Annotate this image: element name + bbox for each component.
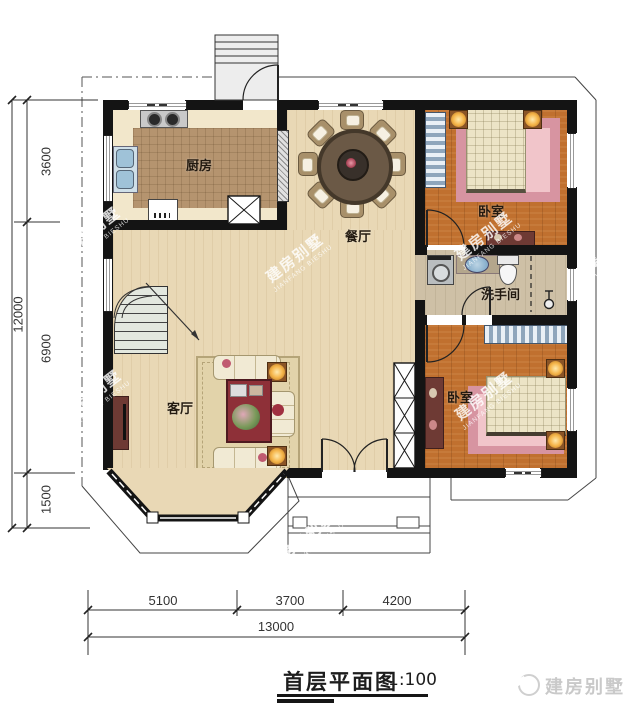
svg-text:JIANFANG BIESHU: JIANFANG BIESHU [590, 232, 640, 282]
wall-top [185, 100, 243, 110]
dresser-decor [514, 234, 522, 241]
wall-bottom [540, 468, 577, 478]
bathroom-label: 洗手间 [481, 288, 520, 301]
drawing-title: 首层平面图 [283, 666, 398, 696]
washer-top-panel [428, 256, 451, 260]
wall-right [567, 300, 577, 388]
dim-left-total: 12000 [12, 285, 25, 345]
wall-right [567, 100, 577, 133]
appliance-grill [154, 213, 170, 218]
wall-bedroom-top-south [465, 245, 577, 255]
title-underline-short [277, 699, 334, 703]
washer-door [432, 264, 450, 282]
bedroom-bottom-right-window [568, 388, 576, 432]
wall-top [382, 100, 577, 110]
sink-basin [116, 149, 134, 168]
drawing-scale: 1:100 [388, 670, 437, 690]
bedroom-top-right-window [568, 133, 576, 189]
dim-left-bottom: 1500 [40, 470, 53, 530]
wall-middle-vertical [415, 110, 425, 250]
tv-screen [123, 404, 126, 440]
dining-chair [298, 152, 318, 176]
svg-text:建房别墅: 建房别墅 [275, 508, 340, 564]
dresser-decor [494, 234, 502, 241]
wall-bathroom-south [462, 315, 466, 325]
kitchen-label: 厨房 [186, 159, 212, 172]
bedroom-bottom-label: 卧室 [447, 391, 473, 404]
bedside-lamp [546, 359, 565, 378]
dining-label: 餐厅 [345, 230, 371, 243]
dim-bottom-middle: 3700 [260, 594, 320, 607]
sink-basin [116, 170, 134, 189]
wall-top [103, 100, 128, 110]
wash-basin [465, 256, 489, 273]
table-flower [346, 158, 356, 168]
brand-logo-icon [518, 674, 540, 696]
bedroom-top-bed [466, 104, 526, 193]
entry-porch [288, 478, 430, 553]
wall-bathroom-south [492, 315, 577, 325]
dresser-decor [429, 420, 437, 430]
side-table-lamp [267, 446, 287, 466]
table-book [230, 384, 247, 397]
bedroom-bottom-window [505, 469, 542, 477]
dim-left-middle: 6900 [40, 319, 53, 379]
armchair-pillow [272, 404, 284, 416]
wall-bottom [287, 468, 322, 478]
rear-porch [215, 35, 278, 100]
dim-left-top: 3600 [40, 132, 53, 192]
sofa-pillow [222, 359, 231, 368]
svg-text:建房别墅: 建房别墅 [581, 218, 640, 274]
wall-bathroom-south [415, 315, 427, 325]
sofa-pillow [258, 453, 267, 462]
tv-cabinet [112, 396, 129, 450]
bedside-lamp [449, 110, 468, 129]
bathroom-right-window [568, 268, 576, 302]
flower-bouquet [232, 404, 260, 430]
kitchen-top-window [128, 101, 187, 109]
dim-bottom-right: 4200 [367, 594, 427, 607]
svg-text:JIANFANG BIESHU: JIANFANG BIESHU [284, 522, 346, 572]
dining-top-window [318, 101, 384, 109]
living-label: 客厅 [167, 402, 193, 415]
bedside-lamp [546, 431, 565, 450]
dresser-decor [429, 388, 437, 398]
dim-bottom-total: 13000 [246, 620, 306, 633]
kitchen-left-window [104, 135, 112, 202]
stove-burner-icon [147, 112, 162, 127]
wall-middle-vertical [415, 300, 425, 470]
kitchen-sliding-door [277, 130, 289, 202]
title-underline [277, 694, 428, 697]
bedroom-bottom-bed [486, 376, 566, 436]
brand-logo-text: 建房别墅 [545, 673, 625, 699]
bedside-lamp [523, 110, 542, 129]
table-book [249, 385, 263, 396]
bedroom-top-label: 卧室 [478, 205, 504, 218]
wall-right [567, 187, 577, 268]
dining-chair [340, 110, 364, 130]
dim-bottom-left: 5100 [133, 594, 193, 607]
floor-plan: 厨房 餐厅 客厅 卧室 洗手间 卧室 3600 6900 1500 12000 … [0, 0, 640, 704]
living-left-window [104, 258, 112, 312]
wall-bottom [387, 468, 505, 478]
bedroom-bottom-wardrobe [484, 325, 569, 344]
wall-kitchen-right [277, 100, 287, 130]
wall-kitchen-bottom [103, 220, 287, 230]
bedroom-top-wardrobe [425, 112, 446, 188]
bay-window [109, 471, 287, 523]
wall-bedroom-top-south [415, 245, 427, 255]
stove-burner-icon [165, 112, 180, 127]
